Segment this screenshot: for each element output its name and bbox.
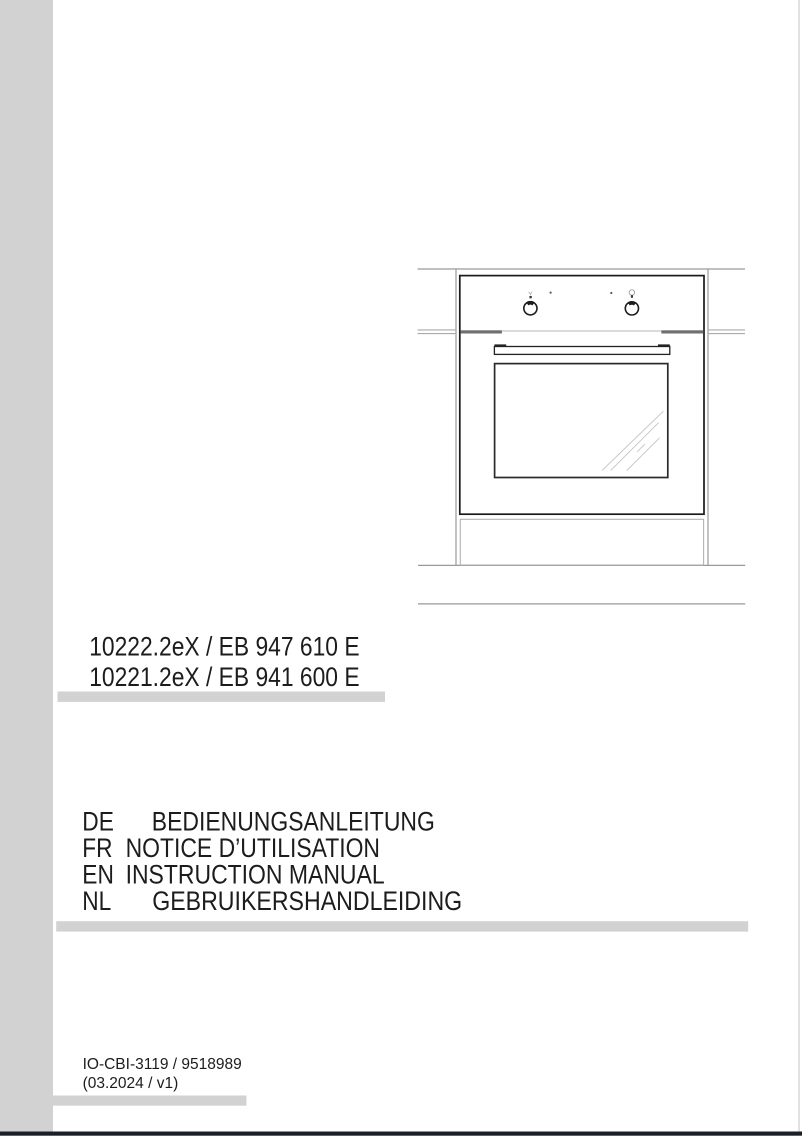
svg-text:IO-CBI-3119 / 9518989: IO-CBI-3119 / 9518989 — [83, 1056, 242, 1073]
svg-text:10221.2eX / EB 941 600 E: 10221.2eX / EB 941 600 E — [89, 661, 359, 692]
svg-text:(03.2024 / v1): (03.2024 / v1) — [83, 1075, 179, 1092]
svg-text:NL: NL — [82, 885, 111, 916]
svg-text:10222.2eX / EB 947 610 E: 10222.2eX / EB 947 610 E — [89, 631, 359, 662]
svg-text:GEBRUIKERSHANDLEIDING: GEBRUIKERSHANDLEIDING — [152, 885, 462, 916]
